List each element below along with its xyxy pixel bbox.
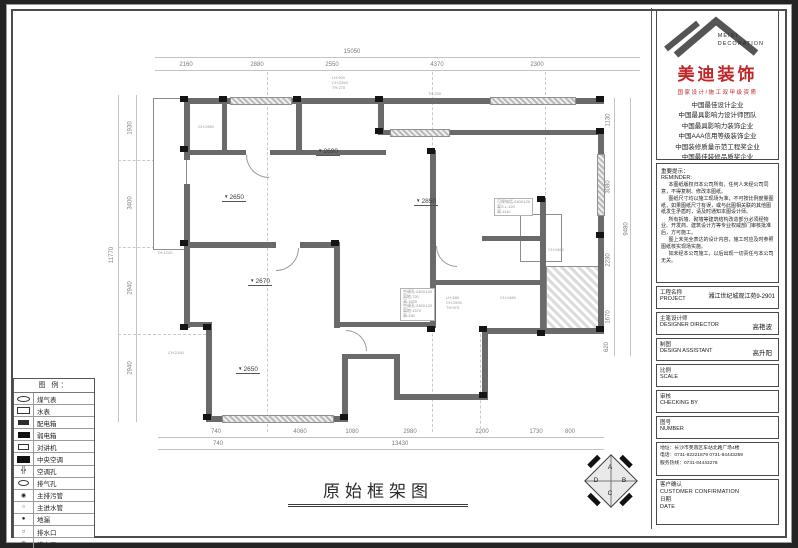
wall-segment	[540, 198, 546, 334]
dim-label: 15050	[344, 49, 361, 55]
annotation: TH:970	[446, 305, 459, 310]
level-triangle-icon: ▼	[250, 278, 254, 283]
dim-line	[158, 449, 604, 450]
wall-segment	[184, 242, 276, 248]
level-triangle-icon: ▼	[416, 198, 420, 203]
legend-row: 中央空调	[14, 453, 94, 465]
wall-segment	[222, 98, 227, 152]
wall-segment	[430, 150, 436, 242]
annotation: CH:1980	[198, 124, 214, 129]
column-marker	[537, 330, 545, 336]
dim-label: 800	[565, 429, 575, 435]
shaft-hatch	[546, 266, 600, 332]
column-marker	[596, 232, 604, 238]
level-value: 2690	[323, 148, 337, 155]
date-label-cn: 日期	[660, 497, 775, 504]
annotation: TH:270	[332, 85, 345, 90]
dim-label: 11770	[109, 247, 115, 263]
wall-segment	[342, 354, 400, 359]
column-marker	[180, 146, 188, 152]
ac-annotation-box: 空调孔:240X120 离地:720 高:1520 空调孔:240X120 离地…	[400, 288, 435, 321]
column-marker	[331, 240, 339, 246]
project-value: 湘江世纪城观江苑9-2901	[708, 291, 775, 300]
dim-label: 9480	[624, 222, 630, 235]
construction-line	[118, 334, 206, 335]
window-band	[597, 154, 605, 216]
project-field: 工程名称 PROJECT 湘江世纪城观江苑9-2901	[656, 286, 779, 309]
reminder-label-en: REMINDER:	[661, 175, 774, 181]
water-meter-icon	[14, 405, 34, 416]
legend-row: ╬空调孔	[14, 466, 94, 478]
column-marker	[180, 324, 188, 330]
dim-label: 3080	[606, 180, 612, 193]
gas-meter-icon	[14, 393, 34, 404]
wall-segment	[598, 234, 604, 334]
company-logo-box: MEIDI DECORATION 美迪装饰 国家设计/施工双甲级资质 中国最佳设…	[656, 10, 779, 160]
credential-line: 国家设计/施工双甲级资质	[657, 88, 778, 96]
main-sewage-pipe-icon: ◉	[14, 490, 34, 501]
legend-label: 煤气表	[34, 394, 57, 404]
elevation-letter-d: D	[591, 477, 601, 484]
column-marker	[375, 128, 383, 134]
annotation-line: 高:1110	[497, 210, 530, 215]
dim-label: 2880	[250, 62, 263, 68]
power-box-icon	[14, 417, 34, 428]
legend-row: 配电箱	[14, 417, 94, 429]
company-address: 地址：长沙市芙蓉区车站北路广场4楼	[660, 445, 775, 452]
reminder-paragraph: 所有拆墙、砌墙等建筑结构改造部分必须经物业、开发商、建筑设计方等专业权威部门审核…	[661, 217, 774, 237]
company-honors: 中国最佳设计企业 中国最具影响力设计师团队 中国最具影响力装饰企业 中国AAA信…	[657, 101, 778, 163]
dim-label: 2940	[128, 281, 134, 294]
dim-label: 1130	[605, 114, 611, 127]
column-marker	[180, 96, 188, 102]
drain-outlet-icon: ○	[14, 526, 34, 537]
wall-segment	[206, 322, 212, 422]
legend-label: 排水口	[34, 539, 57, 548]
drawing-sheet-view: 15050 2160 2880 2550 4370 2300 740 4060 …	[0, 0, 798, 548]
dim-label: 620	[604, 342, 610, 352]
legend-row: ◉主排污管	[14, 490, 94, 502]
column-marker	[596, 128, 604, 134]
intercom-annotation-box: 可视电话:240X120 离S.L:120 高:1110	[494, 198, 533, 216]
dim-line	[158, 437, 604, 438]
elevation-letter-a: A	[605, 464, 615, 471]
column-marker	[375, 96, 383, 102]
honor-line: 中国最佳装修品质奖企业	[657, 153, 778, 163]
column-marker	[219, 96, 227, 102]
title-underline	[288, 504, 468, 507]
column-marker	[596, 326, 604, 332]
reminder-paragraph: 本图纸版权归本公司所有，任何人未经公司同意，不得复制、修改本图纸。	[661, 182, 774, 195]
legend-label: 空调孔	[34, 466, 57, 476]
legend-label: 弱电箱	[34, 430, 57, 440]
construction-line	[267, 72, 268, 432]
annotation-line: 高:330	[403, 314, 432, 319]
drawing-title-text: 原始框架图	[288, 477, 468, 502]
number-field: 图号 NUMBER	[656, 416, 779, 439]
wall-segment	[184, 184, 190, 248]
intercom-icon	[14, 441, 34, 452]
legend-row: ○排水口	[14, 526, 94, 538]
wall-segment	[482, 236, 544, 241]
legend-label: 主进水管	[34, 502, 63, 512]
legend-row: 煤气表	[14, 393, 94, 405]
checking-field: 审核 CHECKING BY	[656, 390, 779, 413]
field-label-en: SCALE	[660, 374, 775, 380]
level-value: 2670	[255, 278, 269, 285]
dim-label: 740	[213, 441, 223, 447]
legend-row: ◎排水口	[14, 538, 94, 548]
wall-segment	[430, 280, 542, 285]
wall-segment	[394, 394, 488, 400]
dim-label: 13430	[392, 441, 409, 447]
dim-line	[614, 98, 615, 356]
dim-label: 2940	[128, 361, 134, 374]
elevation-letter-b: B	[619, 477, 629, 484]
column-marker	[180, 240, 188, 246]
contact-box: 地址：长沙市芙蓉区车站北路广场4楼 电话：0731-82221879 0731-…	[656, 442, 779, 476]
dim-label: 2550	[325, 62, 338, 68]
date-label-en: DATE	[660, 504, 775, 511]
dim-label: 2230	[606, 253, 612, 266]
legend-row: 弱电箱	[14, 429, 94, 441]
dim-line	[155, 70, 640, 71]
legend-label: 主排污管	[34, 490, 63, 500]
dim-label: 3400	[128, 196, 134, 209]
service-hotline: 服务热线：0731-84443278	[660, 460, 775, 467]
legend-row: ●地漏	[14, 514, 94, 526]
column-marker	[479, 326, 487, 332]
column-marker	[203, 324, 211, 330]
annotation: CH:2160	[168, 350, 184, 355]
dim-line	[630, 98, 631, 356]
wall-segment	[334, 322, 436, 327]
dim-label: 4370	[430, 62, 443, 68]
legend-label: 配电箱	[34, 418, 57, 428]
legend-label: 水表	[34, 406, 50, 416]
wall-segment	[482, 328, 488, 400]
column-marker	[203, 414, 211, 420]
balcony-outline	[153, 98, 187, 250]
legend-header: 图 例：	[14, 379, 94, 393]
confirmation-label-cn: 客户确认	[660, 482, 775, 489]
legend-panel: 图 例： 煤气表 水表 配电箱 弱电箱 对讲机 中央空调 ╬空调孔 排气孔 ◉主…	[13, 378, 95, 538]
field-label-cn: 比例	[660, 366, 775, 374]
legend-label: 中央空调	[34, 454, 63, 464]
level-value: 2650	[229, 194, 243, 201]
ac-hole-icon: ╬	[14, 466, 34, 477]
window-band	[390, 129, 450, 137]
dim-label: 2300	[530, 62, 543, 68]
construction-line	[480, 334, 481, 434]
column-marker	[427, 326, 435, 332]
level-marker: ▼2670	[248, 278, 272, 286]
title-block: MEIDI DECORATION 美迪装饰 国家设计/施工双甲级资质 中国最佳设…	[651, 8, 782, 529]
brand-en-line1: MEIDI	[718, 33, 764, 41]
dim-label: 4060	[293, 429, 306, 435]
wall-segment	[342, 354, 348, 422]
confirmation-label-en: CUSTOMER CONFIRMATION	[660, 489, 775, 496]
dim-label: 2160	[179, 62, 192, 68]
level-value: 2850	[421, 198, 435, 205]
dim-label: 1730	[529, 429, 542, 435]
legend-label: 排气孔	[34, 478, 57, 488]
window-band	[222, 415, 334, 423]
legend-label: 排水口	[34, 527, 57, 537]
reminder-paragraph: 图纸尺寸均以施工现场为准，不可按比例度量图纸，如果图纸尺寸有误，或与此图相关联的…	[661, 196, 774, 216]
designer-field: 主笔设计师 DESIGNER DIRECTOR 高艳波	[656, 312, 779, 335]
reminder-paragraph: 图上未完全表达的设计内容，施工时应及时参照图纸核实现场实施。	[661, 237, 774, 250]
wall-segment	[334, 242, 340, 328]
main-water-inlet-icon: ○	[14, 502, 34, 513]
level-value: 2650	[243, 366, 257, 373]
drain-outlet-double-icon: ◎	[14, 538, 34, 548]
honor-line: 中国最具影响力设计师团队	[657, 111, 778, 121]
field-label-cn: 审核	[660, 392, 775, 400]
dim-label: 2200	[475, 429, 488, 435]
dim-label: 1930	[128, 121, 134, 134]
dim-line	[118, 95, 119, 422]
floor-drain-icon: ●	[14, 514, 34, 525]
elevation-index-symbol: A B C D	[579, 447, 641, 513]
level-triangle-icon: ▼	[318, 148, 322, 153]
brand-english: MEIDI DECORATION	[718, 33, 764, 48]
customer-confirmation-box: 客户确认 CUSTOMER CONFIRMATION 日期 DATE	[656, 479, 779, 525]
honor-line: 中国装修质量示范工程奖企业	[657, 143, 778, 153]
column-marker	[427, 148, 435, 154]
legend-row: 对讲机	[14, 441, 94, 453]
dim-label: 1670	[606, 310, 612, 323]
column-marker	[596, 96, 604, 102]
assistant-value: 高升阳	[753, 347, 773, 357]
legend-row: 水表	[14, 405, 94, 417]
annotation: CH:1580	[500, 295, 516, 300]
company-phone: 电话：0731-82221879 0731-84443259	[660, 452, 775, 459]
dim-label: 2980	[403, 429, 416, 435]
honor-line: 中国最具影响力装饰企业	[657, 122, 778, 132]
level-triangle-icon: ▼	[238, 366, 242, 371]
brand-chinese: 美迪装饰	[657, 60, 778, 85]
honor-line: 中国AAA信用等级装饰企业	[657, 132, 778, 142]
dim-label: 1080	[345, 429, 358, 435]
legend-label: 地漏	[34, 514, 50, 524]
legend-row: 排气孔	[14, 478, 94, 490]
column-marker	[340, 414, 348, 420]
assistant-field: 制图 DESIGN ASSISTANT 高升阳	[656, 338, 779, 361]
honor-line: 中国最佳设计企业	[657, 101, 778, 111]
column-marker	[537, 196, 545, 202]
annotation: TH:200	[428, 91, 441, 96]
exhaust-hole-icon	[14, 478, 34, 489]
legend-row: ○主进水管	[14, 502, 94, 514]
designer-value: 高艳波	[753, 321, 773, 331]
annotation: CH:1560	[548, 247, 564, 252]
reminder-label-cn: 重要提示：	[661, 167, 774, 175]
level-triangle-icon: ▼	[224, 194, 228, 199]
column-marker	[479, 392, 487, 398]
dim-line	[155, 57, 640, 58]
central-ac-icon	[14, 453, 34, 464]
scale-field: 比例 SCALE	[656, 364, 779, 387]
field-label-en: CHECKING BY	[660, 400, 775, 406]
wall-segment	[296, 98, 302, 152]
dim-label: 740	[211, 429, 221, 435]
field-label-cn: 图号	[660, 418, 775, 426]
dim-line	[136, 95, 137, 422]
level-marker: ▼2850	[414, 198, 438, 206]
level-marker: ▼2690	[316, 148, 340, 156]
level-marker: ▼2650	[222, 194, 246, 202]
wall-segment	[184, 150, 246, 155]
field-label-en: NUMBER	[660, 426, 775, 432]
reminder-box: 重要提示： REMINDER: 本图纸版权归本公司所有，任何人未经公司同意，不得…	[656, 163, 779, 283]
elevation-letter-c: C	[605, 490, 615, 497]
level-marker: ▼2650	[236, 366, 260, 374]
weak-current-box-icon	[14, 429, 34, 440]
column-marker	[293, 96, 301, 102]
window-band	[490, 97, 576, 105]
reminder-paragraph: 如未经本公司施工，以后出现一切责任与本公司无关。	[661, 251, 774, 264]
legend-label: 对讲机	[34, 442, 57, 452]
drawing-title: 原始框架图	[288, 477, 468, 507]
wall-segment	[184, 248, 190, 328]
annotation: TH:1220	[157, 250, 172, 255]
window-band	[230, 97, 292, 105]
brand-en-line2: DECORATION	[718, 41, 764, 49]
